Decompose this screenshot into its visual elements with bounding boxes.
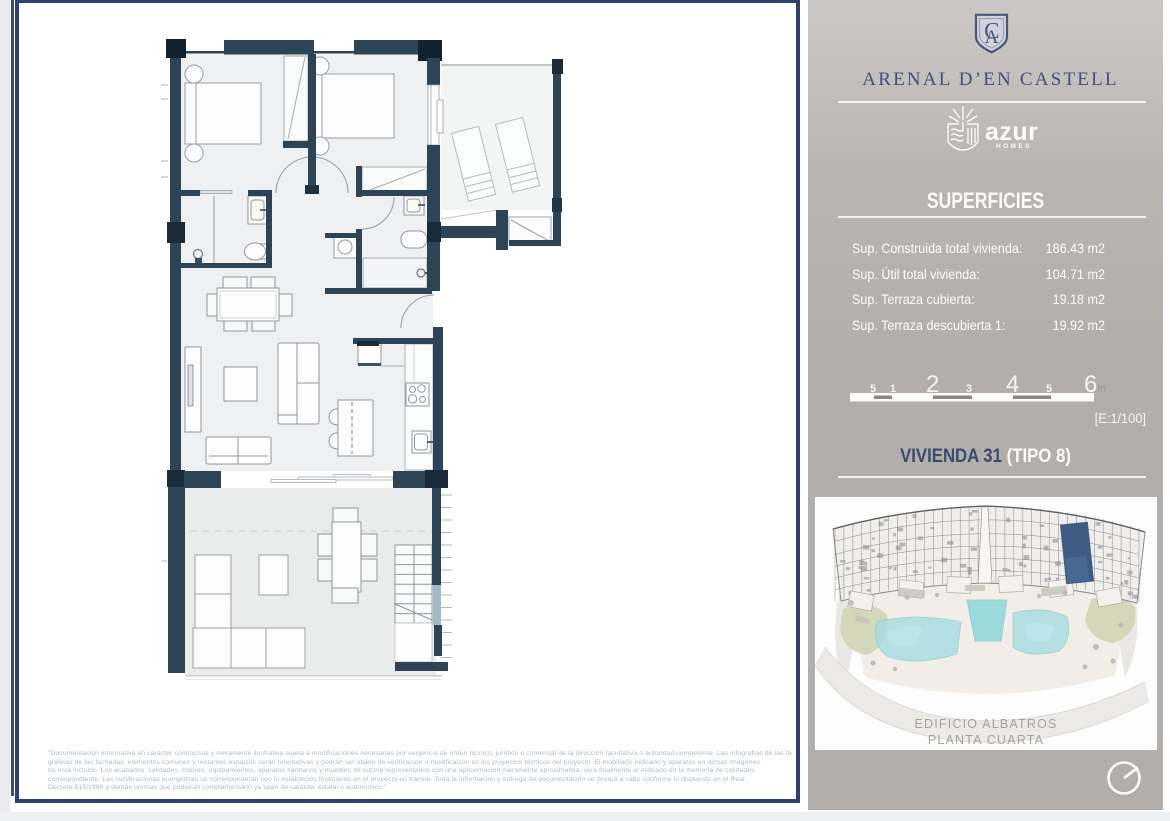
svg-text:EDIFICIO ALBATROS: EDIFICIO ALBATROS (914, 717, 1057, 731)
svg-text:A: A (985, 27, 999, 48)
svg-text:m: m (1097, 383, 1106, 395)
svg-text:PLANTA CUARTA: PLANTA CUARTA (928, 733, 1044, 747)
